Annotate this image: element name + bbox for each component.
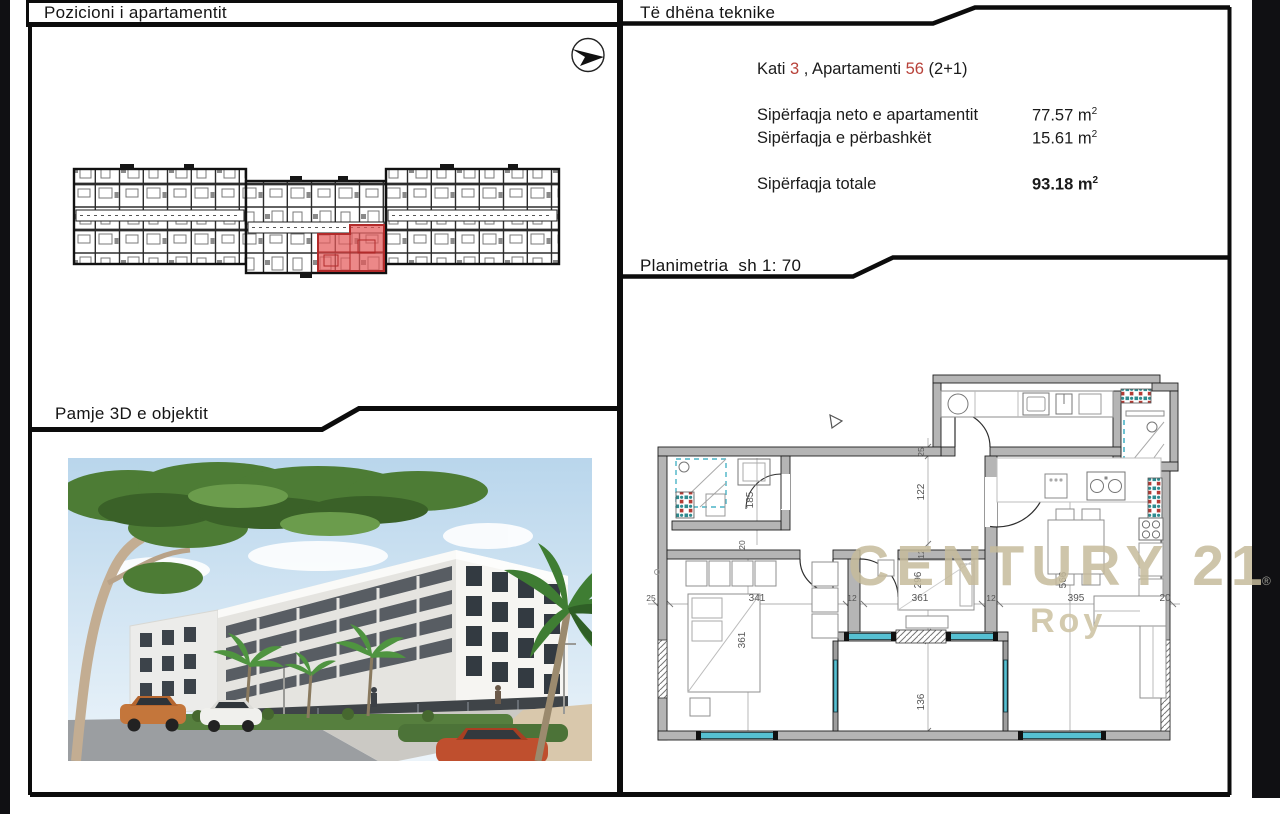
- svg-text:185: 185: [745, 491, 756, 508]
- section-title-plan: Planimetria sh 1: 70: [640, 256, 801, 276]
- svg-text:341: 341: [749, 593, 766, 604]
- svg-text:20: 20: [737, 540, 747, 550]
- svg-text:122: 122: [916, 483, 927, 500]
- building-position-plan: [74, 164, 559, 278]
- common-area-label: Sipërfaqja e përbashkët: [757, 129, 931, 148]
- net-area-label: Sipërfaqja neto e apartamentit: [757, 106, 978, 125]
- apartment-number: 56: [906, 60, 924, 78]
- section-title-view3d: Pamje 3D e objektit: [55, 404, 208, 424]
- plan-scale: sh 1: 70: [738, 256, 801, 275]
- render-3d-image: [68, 458, 592, 761]
- section-title-technical: Të dhëna teknike: [640, 3, 775, 23]
- svg-text:25: 25: [646, 593, 656, 603]
- kitchen-counter-top: [941, 391, 1113, 417]
- century21-watermark: CENTURY 21: [848, 533, 1270, 599]
- apartment-spec-sheet: { "headers": { "position": "Pozicioni i …: [0, 0, 1280, 814]
- agency-name-watermark: Roy: [1030, 602, 1106, 641]
- net-area-value: 77.57 m2: [1032, 106, 1097, 126]
- entrance-marker-icon: [830, 415, 842, 428]
- svg-text:361: 361: [737, 631, 748, 648]
- svg-text:25: 25: [916, 447, 926, 457]
- svg-text:136: 136: [916, 693, 927, 710]
- total-area-value: 93.18 m2: [1032, 175, 1098, 195]
- kitchen-counter-living: [997, 458, 1161, 502]
- registered-mark: ®: [1262, 574, 1271, 588]
- floor-number: 3: [790, 60, 799, 78]
- common-area-value: 15.61 m2: [1032, 129, 1097, 149]
- north-arrow-icon: [572, 39, 604, 72]
- apartment-identity-line: Kati 3 , Apartamenti 56 (2+1): [757, 60, 968, 79]
- section-title-position: Pozicioni i apartamentit: [44, 3, 227, 23]
- total-area-label: Sipërfaqja totale: [757, 175, 876, 194]
